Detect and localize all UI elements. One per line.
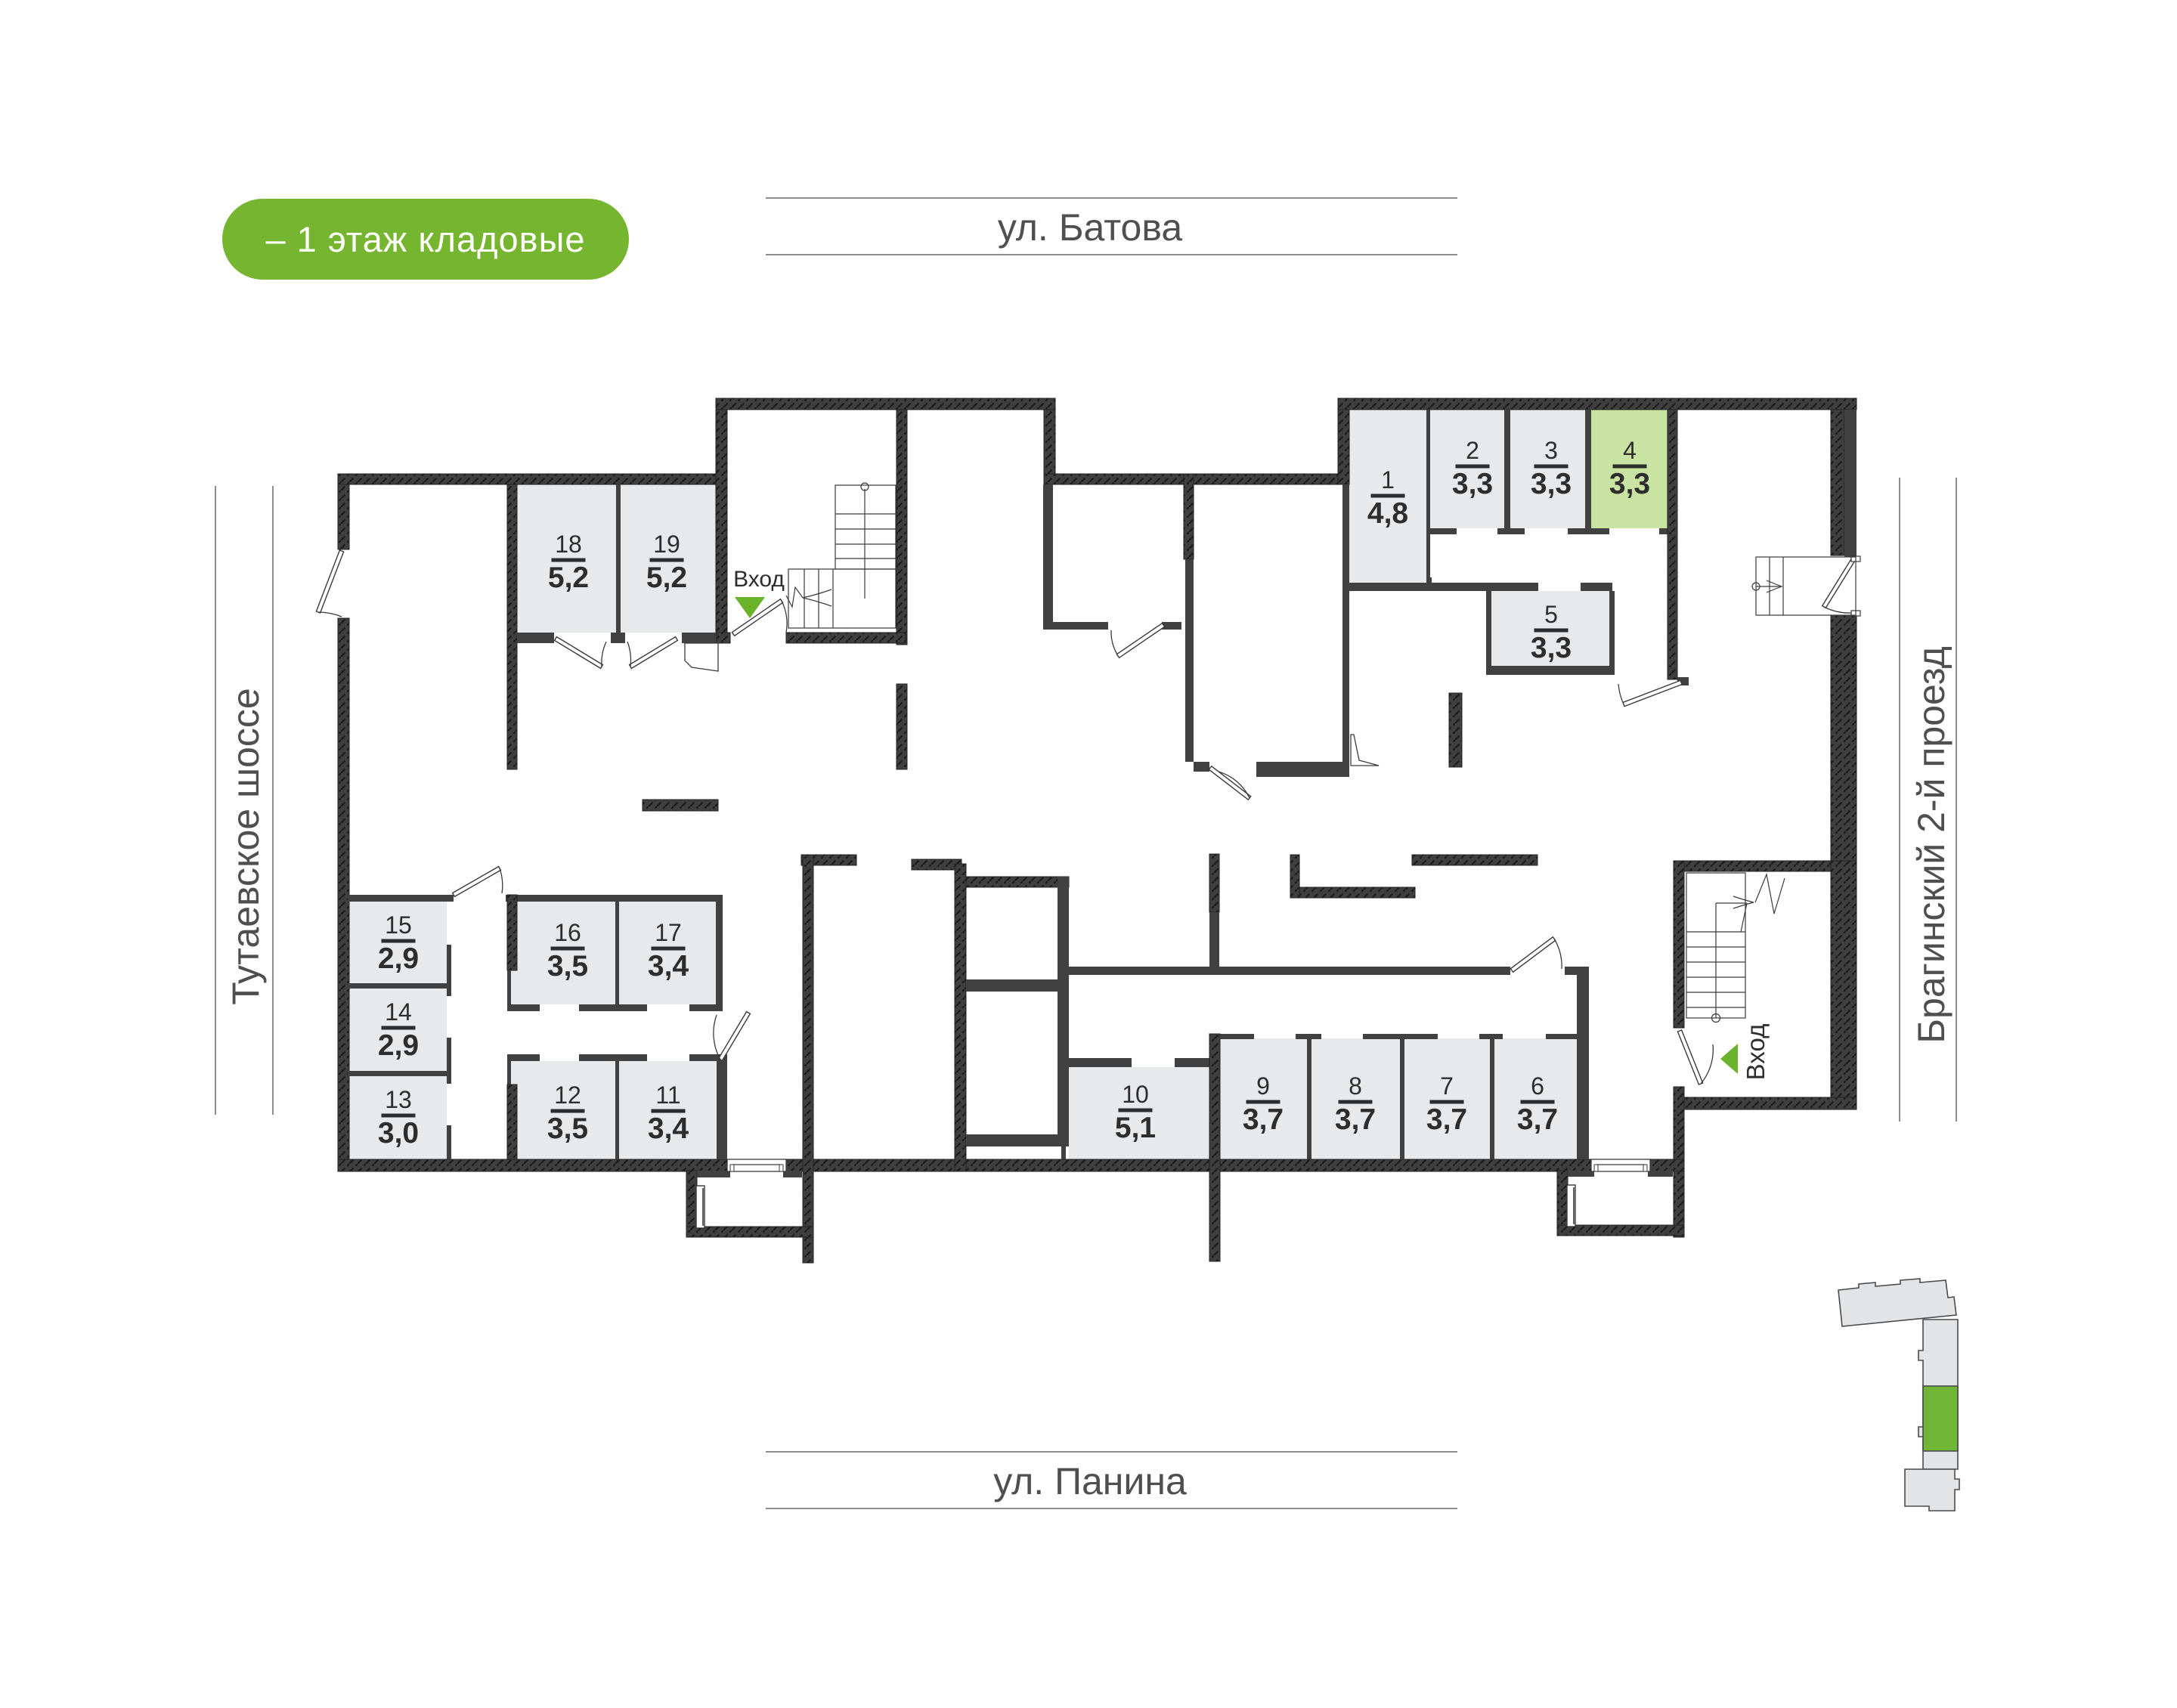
svg-text:3,7: 3,7	[1426, 1103, 1467, 1136]
svg-text:Вход: Вход	[733, 567, 785, 592]
svg-text:ул. Батова: ул. Батова	[998, 206, 1183, 249]
svg-text:Вход: Вход	[1742, 1024, 1770, 1081]
svg-text:14: 14	[385, 998, 412, 1026]
svg-text:Брагинский 2-й проезд: Брагинский 2-й проезд	[1910, 646, 1952, 1044]
svg-text:17: 17	[655, 919, 682, 946]
svg-text:6: 6	[1531, 1072, 1544, 1100]
svg-text:2,9: 2,9	[378, 1029, 419, 1062]
svg-text:– 1 этаж кладовые: – 1 этаж кладовые	[265, 219, 585, 259]
svg-text:2,9: 2,9	[378, 942, 419, 975]
svg-text:3,4: 3,4	[648, 950, 689, 982]
svg-text:3,3: 3,3	[1609, 468, 1650, 500]
svg-text:11: 11	[655, 1081, 680, 1109]
svg-text:3,3: 3,3	[1531, 468, 1572, 500]
svg-text:4: 4	[1623, 437, 1637, 464]
svg-text:12: 12	[554, 1081, 581, 1109]
svg-text:4,8: 4,8	[1367, 497, 1408, 530]
svg-text:1: 1	[1381, 466, 1395, 494]
svg-text:3,7: 3,7	[1517, 1103, 1558, 1136]
svg-text:3,5: 3,5	[547, 1112, 588, 1145]
svg-text:7: 7	[1440, 1072, 1454, 1100]
svg-text:3,3: 3,3	[1452, 468, 1493, 500]
svg-text:3,7: 3,7	[1243, 1103, 1284, 1136]
svg-text:3,5: 3,5	[547, 950, 588, 982]
svg-text:8: 8	[1349, 1072, 1362, 1100]
svg-text:5,2: 5,2	[646, 562, 687, 594]
svg-text:3,4: 3,4	[648, 1112, 689, 1145]
svg-text:ул. Панина: ул. Панина	[993, 1460, 1187, 1502]
svg-text:5: 5	[1544, 601, 1558, 628]
svg-text:3,3: 3,3	[1531, 632, 1572, 664]
svg-text:19: 19	[653, 531, 680, 558]
svg-text:2: 2	[1466, 437, 1479, 464]
svg-text:13: 13	[385, 1086, 412, 1113]
svg-text:5,1: 5,1	[1115, 1112, 1156, 1144]
svg-text:3,7: 3,7	[1335, 1103, 1376, 1136]
svg-text:10: 10	[1122, 1081, 1149, 1108]
svg-text:16: 16	[554, 919, 581, 946]
svg-text:18: 18	[555, 531, 582, 558]
svg-text:9: 9	[1256, 1072, 1270, 1100]
svg-text:3,0: 3,0	[378, 1117, 419, 1149]
svg-text:3: 3	[1544, 437, 1558, 464]
svg-text:15: 15	[385, 911, 412, 939]
svg-text:Тутаевское шоссе: Тутаевское шоссе	[225, 688, 267, 1004]
svg-text:5,2: 5,2	[548, 562, 589, 594]
